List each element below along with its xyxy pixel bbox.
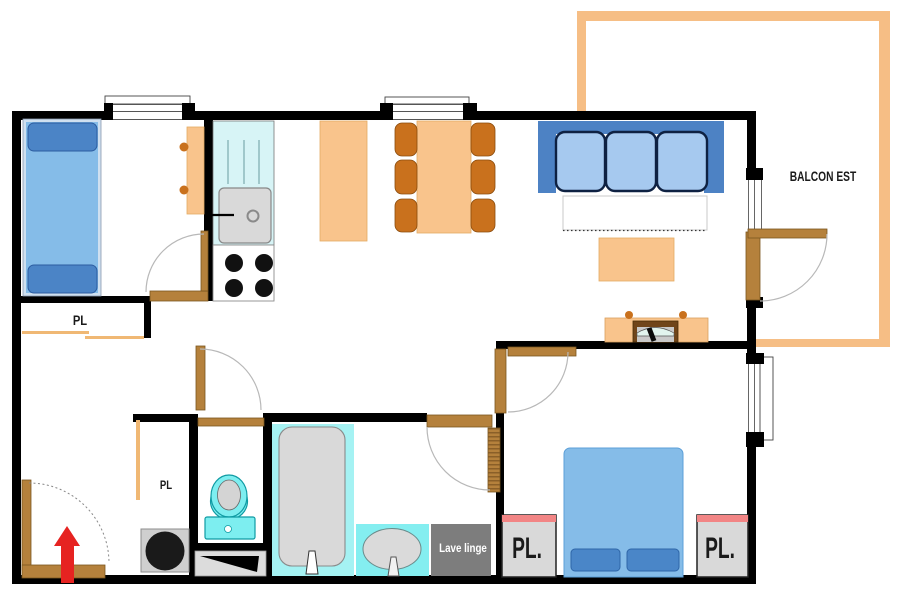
svg-text:PL.: PL. [705, 532, 735, 565]
svg-text:PL: PL [160, 479, 173, 492]
svg-text:BALCON EST: BALCON EST [790, 168, 857, 184]
svg-text:Lave linge: Lave linge [439, 542, 487, 555]
svg-text:PL: PL [73, 313, 88, 328]
svg-text:PL.: PL. [512, 532, 542, 565]
